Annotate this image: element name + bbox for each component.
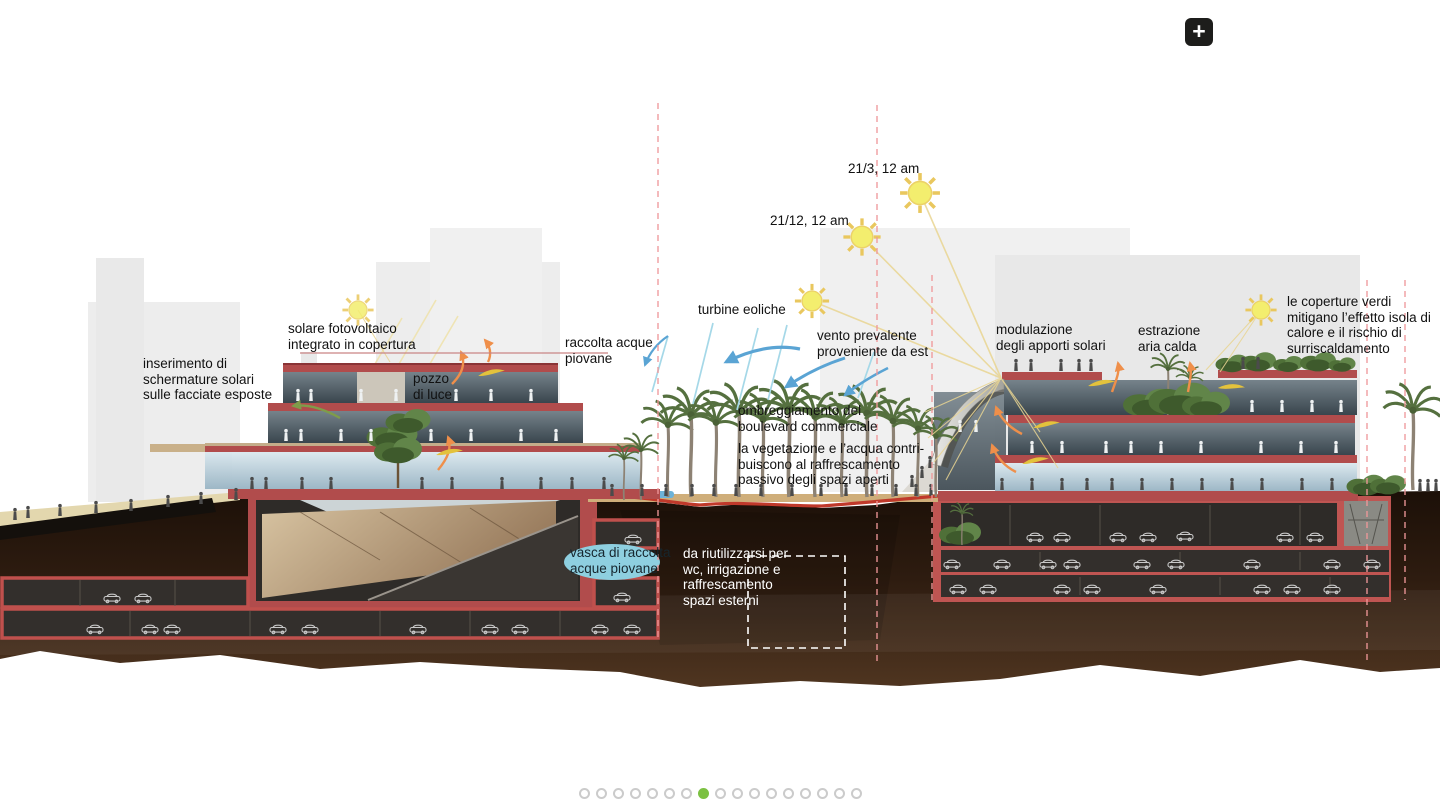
sun-icon — [1245, 294, 1276, 325]
annotation-pozzo: pozzo di luce — [413, 371, 452, 402]
slideshow-viewer: inserimento di schermature solari sulle … — [0, 0, 1440, 809]
parking-right — [933, 496, 1391, 602]
sun-label-march: 21/3, 12 am — [848, 161, 919, 177]
annotation-raccolta: raccolta acque piovane — [565, 335, 653, 366]
carousel-dot[interactable] — [817, 788, 828, 799]
carousel-dot[interactable] — [732, 788, 743, 799]
carousel-dot-active[interactable] — [698, 788, 709, 799]
carousel-dot[interactable] — [834, 788, 845, 799]
underground-hall — [248, 493, 597, 608]
carousel-dot[interactable] — [613, 788, 624, 799]
carousel-dot[interactable] — [681, 788, 692, 799]
annotation-solare: solare fotovoltaico integrato in copertu… — [288, 321, 416, 352]
annotation-turbine: turbine eoliche — [698, 302, 786, 318]
architecture-section-illustration — [0, 0, 1440, 809]
annotation-coperture: le coperture verdi mitigano l’effetto is… — [1287, 294, 1431, 357]
carousel-dots — [0, 788, 1440, 799]
carousel-dot[interactable] — [579, 788, 590, 799]
annotation-vegetazione: la vegetazione e l’acqua contri- buiscon… — [738, 441, 924, 488]
carousel-dot[interactable] — [664, 788, 675, 799]
carousel-dot[interactable] — [783, 788, 794, 799]
annotation-ombreggiamento: ombreggiamento del boulevard commerciale — [738, 403, 878, 434]
sun-icon-march — [900, 173, 940, 213]
sun-label-december: 21/12, 12 am — [770, 213, 849, 229]
zoom-in-button[interactable]: + — [1185, 18, 1213, 46]
carousel-dot[interactable] — [715, 788, 726, 799]
sun-icon-december — [843, 218, 880, 255]
annotation-modulazione: modulazione degli apporti solari — [996, 322, 1106, 353]
carousel-dot[interactable] — [851, 788, 862, 799]
carousel-dot[interactable] — [647, 788, 658, 799]
annotation-schermature: inserimento di schermature solari sulle … — [143, 356, 272, 403]
annotation-estrazione: estrazione aria calda — [1138, 323, 1200, 354]
carousel-dot[interactable] — [800, 788, 811, 799]
sun-icon — [795, 284, 829, 318]
carousel-dot[interactable] — [749, 788, 760, 799]
carousel-dot[interactable] — [766, 788, 777, 799]
carousel-dot[interactable] — [596, 788, 607, 799]
annotation-vento: vento prevalente proveniente da est — [817, 328, 928, 359]
carousel-dot[interactable] — [630, 788, 641, 799]
annotation-vasca: vasca di raccolta acque piovane — [570, 545, 671, 576]
annotation-riutilizzo: da riutilizzarsi per wc, irrigazione e r… — [683, 546, 788, 609]
